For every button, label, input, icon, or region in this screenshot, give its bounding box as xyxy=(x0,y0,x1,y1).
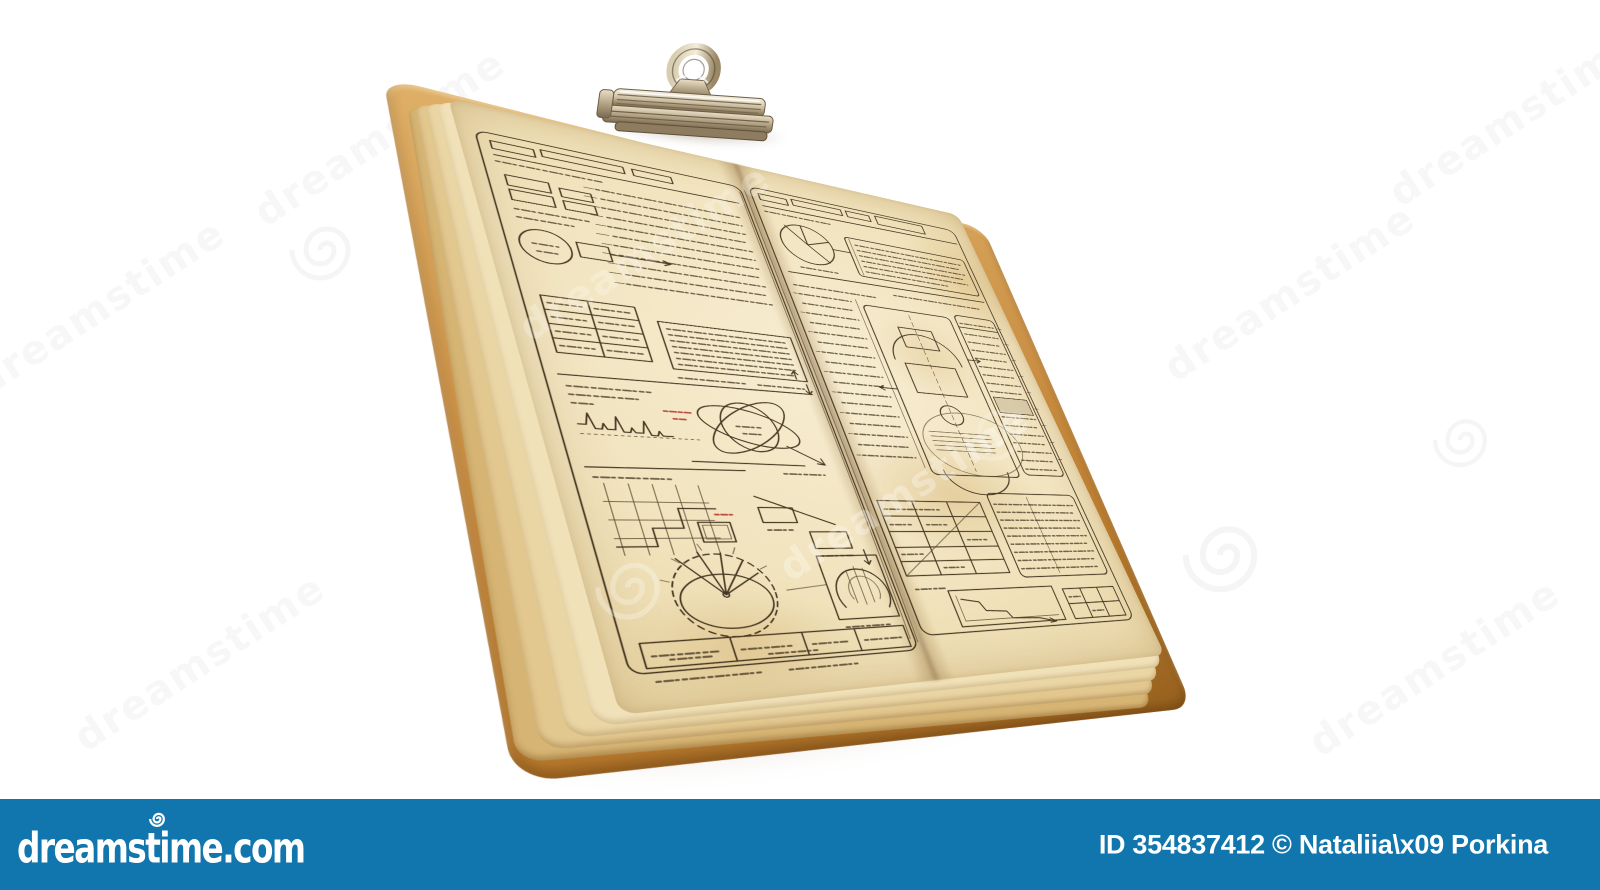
dreamstime-spiral-icon xyxy=(275,205,365,295)
watermark-text: dreamstime xyxy=(1301,570,1569,766)
stock-photo-canvas: dreamstime dreamstime dreamstime dreamst… xyxy=(0,0,1600,890)
dreamstime-logo-spiral-icon xyxy=(146,808,168,830)
pie-diagram xyxy=(774,221,861,278)
dreamstime-spiral-icon xyxy=(950,390,1035,475)
watermark-text: dreamstime xyxy=(1156,195,1424,391)
mini-grid xyxy=(1062,586,1126,618)
watermark-text: dreamstime xyxy=(1381,20,1600,216)
metal-clip-icon xyxy=(584,31,807,164)
dreamstime-spiral-icon xyxy=(580,540,675,635)
watermark-text: dreamstime xyxy=(66,565,334,761)
metal-clip xyxy=(584,31,807,164)
dreamstime-logo-text: dreamstime.com xyxy=(17,823,304,872)
graph-box xyxy=(948,586,1067,629)
row-list xyxy=(792,290,925,468)
dreamstime-spiral-icon xyxy=(1420,400,1500,480)
dreamstime-spiral-icon xyxy=(1165,500,1275,610)
image-credit: ID 354837412 © Nataliia\x09 Porkina xyxy=(1099,829,1548,860)
watermark-text: dreamstime xyxy=(0,210,234,406)
clipboard-photo xyxy=(448,98,1165,715)
ecg-strip xyxy=(572,405,699,440)
notes-box xyxy=(844,237,980,297)
ellipse-diagram xyxy=(667,385,829,475)
dreamstime-logo: dreamstime.com xyxy=(17,823,304,872)
footer-bar: dreamstime.com ID 354837412 © Nataliia\x… xyxy=(0,799,1600,890)
table-b xyxy=(986,493,1109,577)
